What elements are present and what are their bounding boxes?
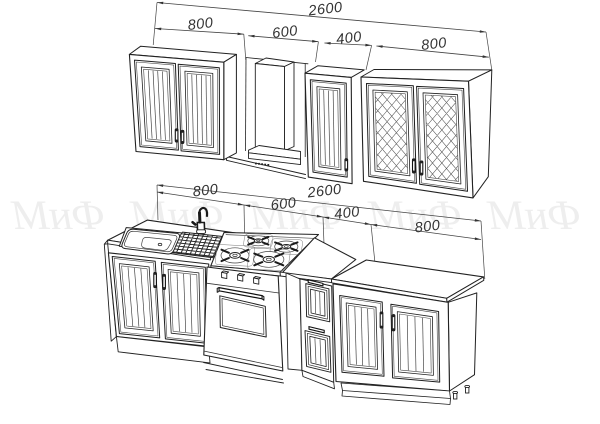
svg-text:МиФ: МиФ	[246, 192, 347, 239]
svg-text:МиФ: МиФ	[8, 192, 109, 239]
svg-text:600: 600	[271, 23, 298, 42]
svg-text:600: 600	[270, 195, 297, 214]
svg-text:400: 400	[333, 204, 360, 223]
svg-text:800: 800	[187, 15, 214, 34]
svg-text:800: 800	[414, 218, 441, 237]
svg-text:МиФ: МиФ	[484, 192, 585, 239]
svg-text:400: 400	[335, 29, 362, 48]
svg-text:800: 800	[420, 35, 447, 54]
svg-text:800: 800	[192, 182, 219, 201]
